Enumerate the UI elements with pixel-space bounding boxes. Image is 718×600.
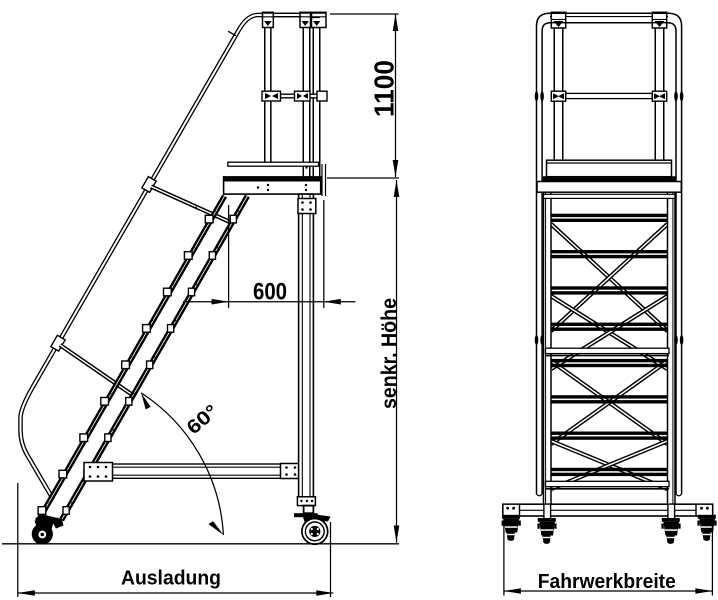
svg-text:Ausladung: Ausladung xyxy=(121,568,221,590)
svg-text:600: 600 xyxy=(253,279,287,306)
svg-text:senkr. Höhe: senkr. Höhe xyxy=(377,298,401,409)
svg-text:1100: 1100 xyxy=(369,60,400,117)
svg-text:Fahrwerkbreite: Fahrwerkbreite xyxy=(538,571,676,593)
